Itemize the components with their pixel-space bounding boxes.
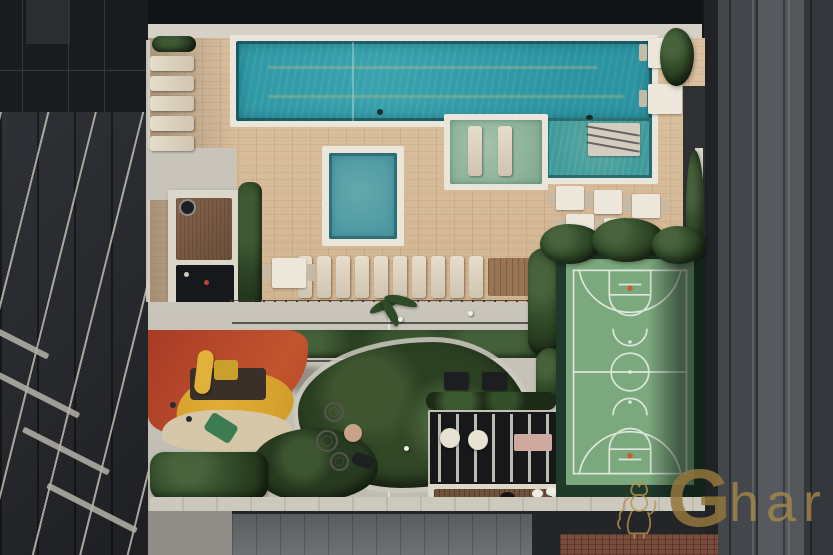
sun-lounger bbox=[150, 56, 194, 71]
furniture-speck bbox=[184, 272, 189, 277]
dining-table bbox=[556, 186, 584, 210]
spring-rider bbox=[170, 402, 176, 408]
sun-lounger bbox=[393, 256, 407, 298]
play-tower bbox=[214, 360, 238, 380]
wire-dome-sculpture bbox=[330, 452, 349, 471]
planter bbox=[152, 36, 196, 52]
upper-roof-shadow bbox=[148, 0, 702, 24]
sun-lounger bbox=[150, 96, 194, 111]
basketball-hoop bbox=[627, 453, 633, 459]
sun-lounger bbox=[469, 256, 483, 298]
lap-pool bbox=[236, 41, 652, 121]
left-tower-roof-panel bbox=[26, 0, 70, 44]
sun-lounger bbox=[355, 256, 369, 298]
dining-table bbox=[594, 190, 622, 214]
pergola-dome-vent bbox=[179, 199, 196, 216]
in-water-lounger bbox=[498, 126, 512, 176]
round-table bbox=[440, 428, 460, 448]
sun-lounger bbox=[374, 256, 388, 298]
left-tower-balconies bbox=[0, 112, 150, 555]
sun-lounger bbox=[150, 116, 194, 131]
roof-seam bbox=[104, 0, 105, 118]
swimmer bbox=[586, 115, 593, 120]
sun-lounger bbox=[150, 136, 194, 151]
aerial-photo: G har bbox=[0, 0, 833, 555]
water-shimmer bbox=[268, 95, 624, 98]
light-bollard bbox=[404, 446, 409, 451]
dining-table bbox=[632, 194, 660, 218]
dining-table bbox=[272, 258, 306, 288]
lounge-chair bbox=[482, 372, 506, 390]
wire-dome-sculpture bbox=[316, 430, 338, 452]
pool-steps bbox=[588, 123, 640, 156]
wet-deck bbox=[450, 120, 542, 184]
round-seat bbox=[344, 424, 362, 442]
light-bollard bbox=[468, 311, 473, 316]
wire-dome-sculpture bbox=[324, 402, 344, 422]
light-bollard bbox=[398, 317, 403, 322]
roof-seam bbox=[22, 0, 23, 118]
ground-level-roof bbox=[232, 514, 532, 555]
in-water-lounger bbox=[468, 126, 482, 176]
pink-table bbox=[514, 434, 552, 451]
watermark-brand-rest: har bbox=[729, 460, 828, 546]
hedge bbox=[238, 182, 262, 308]
kids-pool bbox=[329, 153, 397, 239]
gourmet-pergola bbox=[428, 410, 562, 488]
round-table bbox=[468, 430, 488, 450]
spring-rider bbox=[186, 416, 192, 422]
furniture-speck bbox=[204, 280, 209, 285]
water-shimmer bbox=[268, 66, 598, 69]
sun-lounger bbox=[431, 256, 445, 298]
basketball-hoop bbox=[627, 285, 633, 291]
lounge-chair bbox=[444, 372, 468, 390]
dining-table bbox=[648, 84, 682, 114]
sun-lounger bbox=[317, 256, 331, 298]
sun-lounger bbox=[336, 256, 350, 298]
watermark: G har bbox=[608, 460, 828, 552]
sun-lounger bbox=[150, 76, 194, 91]
ground-pavement bbox=[148, 511, 232, 555]
ghar-lion-crest-icon bbox=[608, 466, 667, 548]
shrub-row bbox=[150, 452, 268, 500]
roof-seam bbox=[0, 70, 148, 71]
pool-lane-rope bbox=[352, 42, 354, 121]
sun-lounger bbox=[450, 256, 464, 298]
roof-seam bbox=[68, 0, 69, 118]
swimmer bbox=[377, 109, 383, 115]
pergola-planter bbox=[426, 392, 556, 410]
watermark-brand-initial: G bbox=[667, 460, 729, 538]
sun-lounger bbox=[412, 256, 426, 298]
